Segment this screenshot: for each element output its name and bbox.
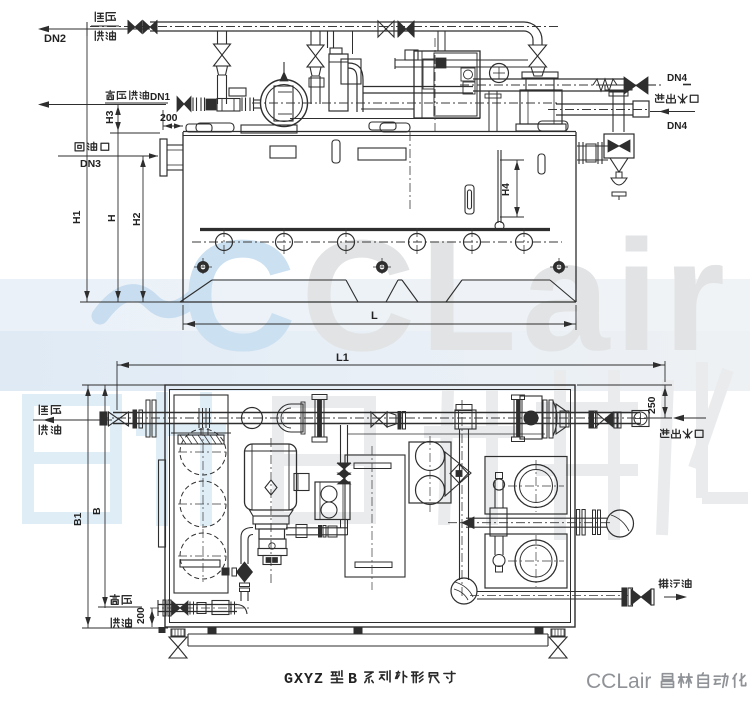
svg-text:DN3: DN3 [80,158,101,170]
svg-text:H1: H1 [71,210,83,224]
svg-text:B: B [348,671,357,688]
svg-text:L1: L1 [336,352,349,364]
svg-text:DN4: DN4 [667,121,687,132]
svg-text:L: L [371,310,378,322]
svg-text:DN4: DN4 [667,73,687,84]
svg-text:B: B [91,507,103,515]
svg-text:DN2: DN2 [44,33,66,45]
svg-text:H: H [106,214,118,222]
svg-text:250: 250 [646,396,658,414]
svg-text:H3: H3 [104,110,116,124]
svg-text:CCLair: CCLair [182,208,730,384]
svg-text:B1: B1 [72,512,84,526]
svg-text:H2: H2 [131,212,143,226]
svg-text:DN1: DN1 [150,92,170,103]
svg-text:CCLair: CCLair [586,670,651,693]
svg-text:200: 200 [136,607,147,624]
svg-text:H4: H4 [501,183,512,196]
svg-text:200: 200 [160,112,178,124]
svg-text:GXYZ: GXYZ [284,671,324,688]
